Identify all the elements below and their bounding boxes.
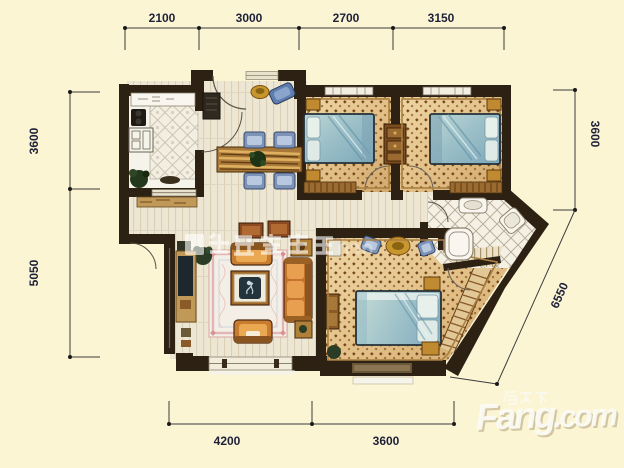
svg-text:2100: 2100 <box>149 11 176 25</box>
svg-text:4200: 4200 <box>214 434 241 448</box>
svg-text:5050: 5050 <box>27 259 41 286</box>
svg-text:3600: 3600 <box>588 121 602 148</box>
svg-text:3600: 3600 <box>373 434 400 448</box>
svg-text:Fang.com: Fang.com <box>475 392 618 438</box>
svg-text:3000: 3000 <box>236 11 263 25</box>
svg-text:3600: 3600 <box>27 127 41 154</box>
svg-text:3150: 3150 <box>428 11 455 25</box>
svg-text:2700: 2700 <box>333 11 360 25</box>
